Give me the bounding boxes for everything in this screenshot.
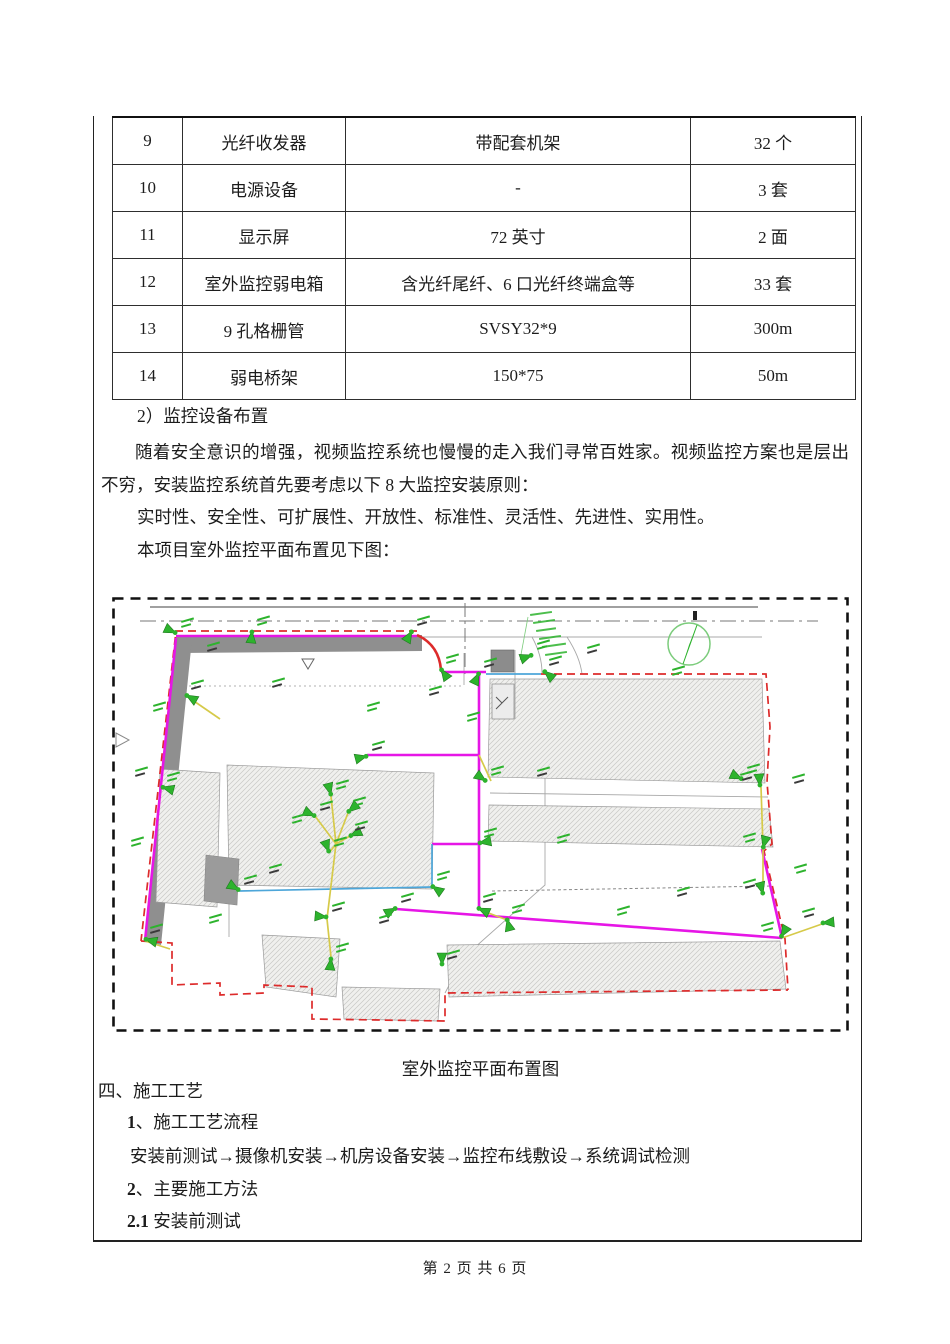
- item2-heading: 2）监控设备布置: [137, 404, 268, 428]
- sub21-text: 安装前测试: [149, 1211, 241, 1231]
- camera-icon: [437, 953, 447, 966]
- document-page: 9光纤收发器带配套机架32 个10电源设备-3 套11显示屏72 英寸2 面12…: [0, 0, 950, 1344]
- cell-spec: 150*75: [346, 353, 691, 400]
- cell-no: 11: [113, 212, 183, 259]
- cell-qty: 300m: [691, 306, 856, 353]
- cell-no: 9: [113, 117, 183, 165]
- north-arrow-icon: [668, 611, 710, 665]
- table-row: 10电源设备-3 套: [113, 165, 856, 212]
- legend-callout: [520, 611, 567, 660]
- section4-sub21: 2.1 安装前测试: [127, 1209, 241, 1233]
- table-row: 11显示屏72 英寸2 面: [113, 212, 856, 259]
- cell-no: 14: [113, 353, 183, 400]
- cell-no: 10: [113, 165, 183, 212]
- camera-icon: [436, 665, 452, 682]
- figure-caption: 室外监控平面布置图: [112, 1056, 849, 1081]
- paragraph-intro: 随着安全意识的增强，视频监控系统也慢慢的走入我们寻常百姓家。视频监控方案也是层出…: [101, 436, 849, 502]
- cell-name: 弱电桥架: [183, 353, 346, 400]
- cell-qty: 33 套: [691, 259, 856, 306]
- sub1-text: 、施工工艺流程: [136, 1112, 259, 1132]
- cell-qty: 50m: [691, 353, 856, 400]
- process-flow: 安装前测试→摄像机安装→机房设备安装→监控布线敷设→系统调试检测: [130, 1144, 690, 1168]
- sub21-number: 2.1: [127, 1211, 149, 1231]
- section4-sub2: 2、主要施工方法: [127, 1177, 258, 1201]
- cell-qty: 3 套: [691, 165, 856, 212]
- site-plan-figure: [112, 597, 849, 1032]
- cell-name: 9 孔格栅管: [183, 306, 346, 353]
- cell-name: 电源设备: [183, 165, 346, 212]
- sub2-text: 、主要施工方法: [136, 1179, 259, 1199]
- survey-symbols: [116, 659, 314, 747]
- equipment-table: 9光纤收发器带配套机架32 个10电源设备-3 套11显示屏72 英寸2 面12…: [112, 116, 856, 400]
- table-row: 9光纤收发器带配套机架32 个: [113, 117, 856, 165]
- cell-name: 室外监控弱电箱: [183, 259, 346, 306]
- cell-spec: SVSY32*9: [346, 306, 691, 353]
- equipment-table-body: 9光纤收发器带配套机架32 个10电源设备-3 套11显示屏72 英寸2 面12…: [113, 117, 856, 400]
- sub1-number: 1: [127, 1112, 136, 1132]
- buildings: [156, 679, 786, 1021]
- site-plan-drawing: [112, 597, 849, 1032]
- cell-qty: 2 面: [691, 212, 856, 259]
- cell-qty: 32 个: [691, 117, 856, 165]
- camera-icon: [755, 881, 768, 897]
- paragraph-see-figure: 本项目室外监控平面布置见下图：: [137, 538, 400, 562]
- cell-name: 光纤收发器: [183, 117, 346, 165]
- cell-name: 显示屏: [183, 212, 346, 259]
- camera-icon: [354, 751, 370, 764]
- cell-no: 12: [113, 259, 183, 306]
- table-row: 12室外监控弱电箱含光纤尾纤、6 口光纤终端盒等33 套: [113, 259, 856, 306]
- section4-heading: 四、施工工艺: [98, 1079, 203, 1103]
- page-number: 第 2 页 共 6 页: [0, 1257, 950, 1278]
- camera-icon: [820, 917, 834, 928]
- gate-house: [491, 650, 515, 719]
- cell-spec: 72 英寸: [346, 212, 691, 259]
- cell-spec: 含光纤尾纤、6 口光纤终端盒等: [346, 259, 691, 306]
- table-row: 139 孔格栅管SVSY32*9300m: [113, 306, 856, 353]
- table-row: 14弱电桥架150*7550m: [113, 353, 856, 400]
- cell-spec: 带配套机架: [346, 117, 691, 165]
- section4-sub1: 1、施工工艺流程: [127, 1110, 258, 1134]
- cell-no: 13: [113, 306, 183, 353]
- paragraph-principles: 实时性、安全性、可扩展性、开放性、标准性、灵活性、先进性、实用性。: [137, 505, 715, 529]
- cell-spec: -: [346, 165, 691, 212]
- sub2-number: 2: [127, 1179, 136, 1199]
